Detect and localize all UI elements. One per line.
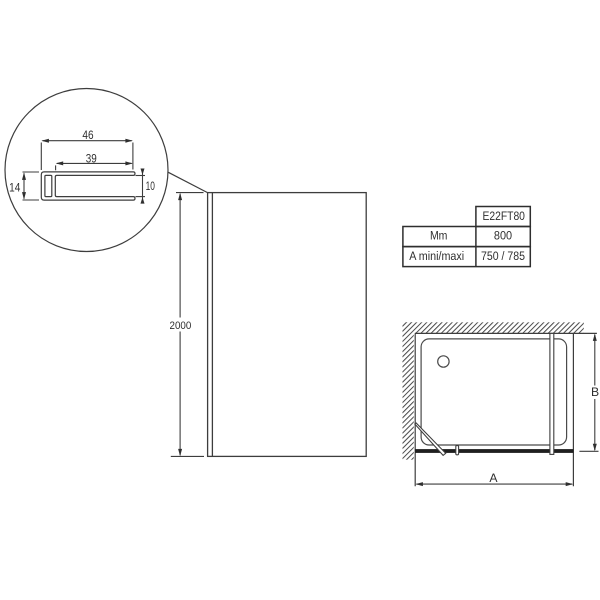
svg-text:B: B <box>591 385 599 399</box>
svg-text:Mm: Mm <box>430 229 448 243</box>
svg-text:39: 39 <box>86 151 97 165</box>
svg-text:14: 14 <box>9 181 21 195</box>
svg-text:46: 46 <box>82 128 94 142</box>
svg-text:2000: 2000 <box>170 320 192 332</box>
svg-text:800: 800 <box>494 229 512 243</box>
svg-text:750 / 785: 750 / 785 <box>481 249 525 263</box>
svg-text:E22FT80: E22FT80 <box>482 209 525 223</box>
svg-text:10: 10 <box>146 179 156 193</box>
svg-text:A mini/maxi: A mini/maxi <box>409 249 464 263</box>
svg-text:A: A <box>489 471 498 485</box>
